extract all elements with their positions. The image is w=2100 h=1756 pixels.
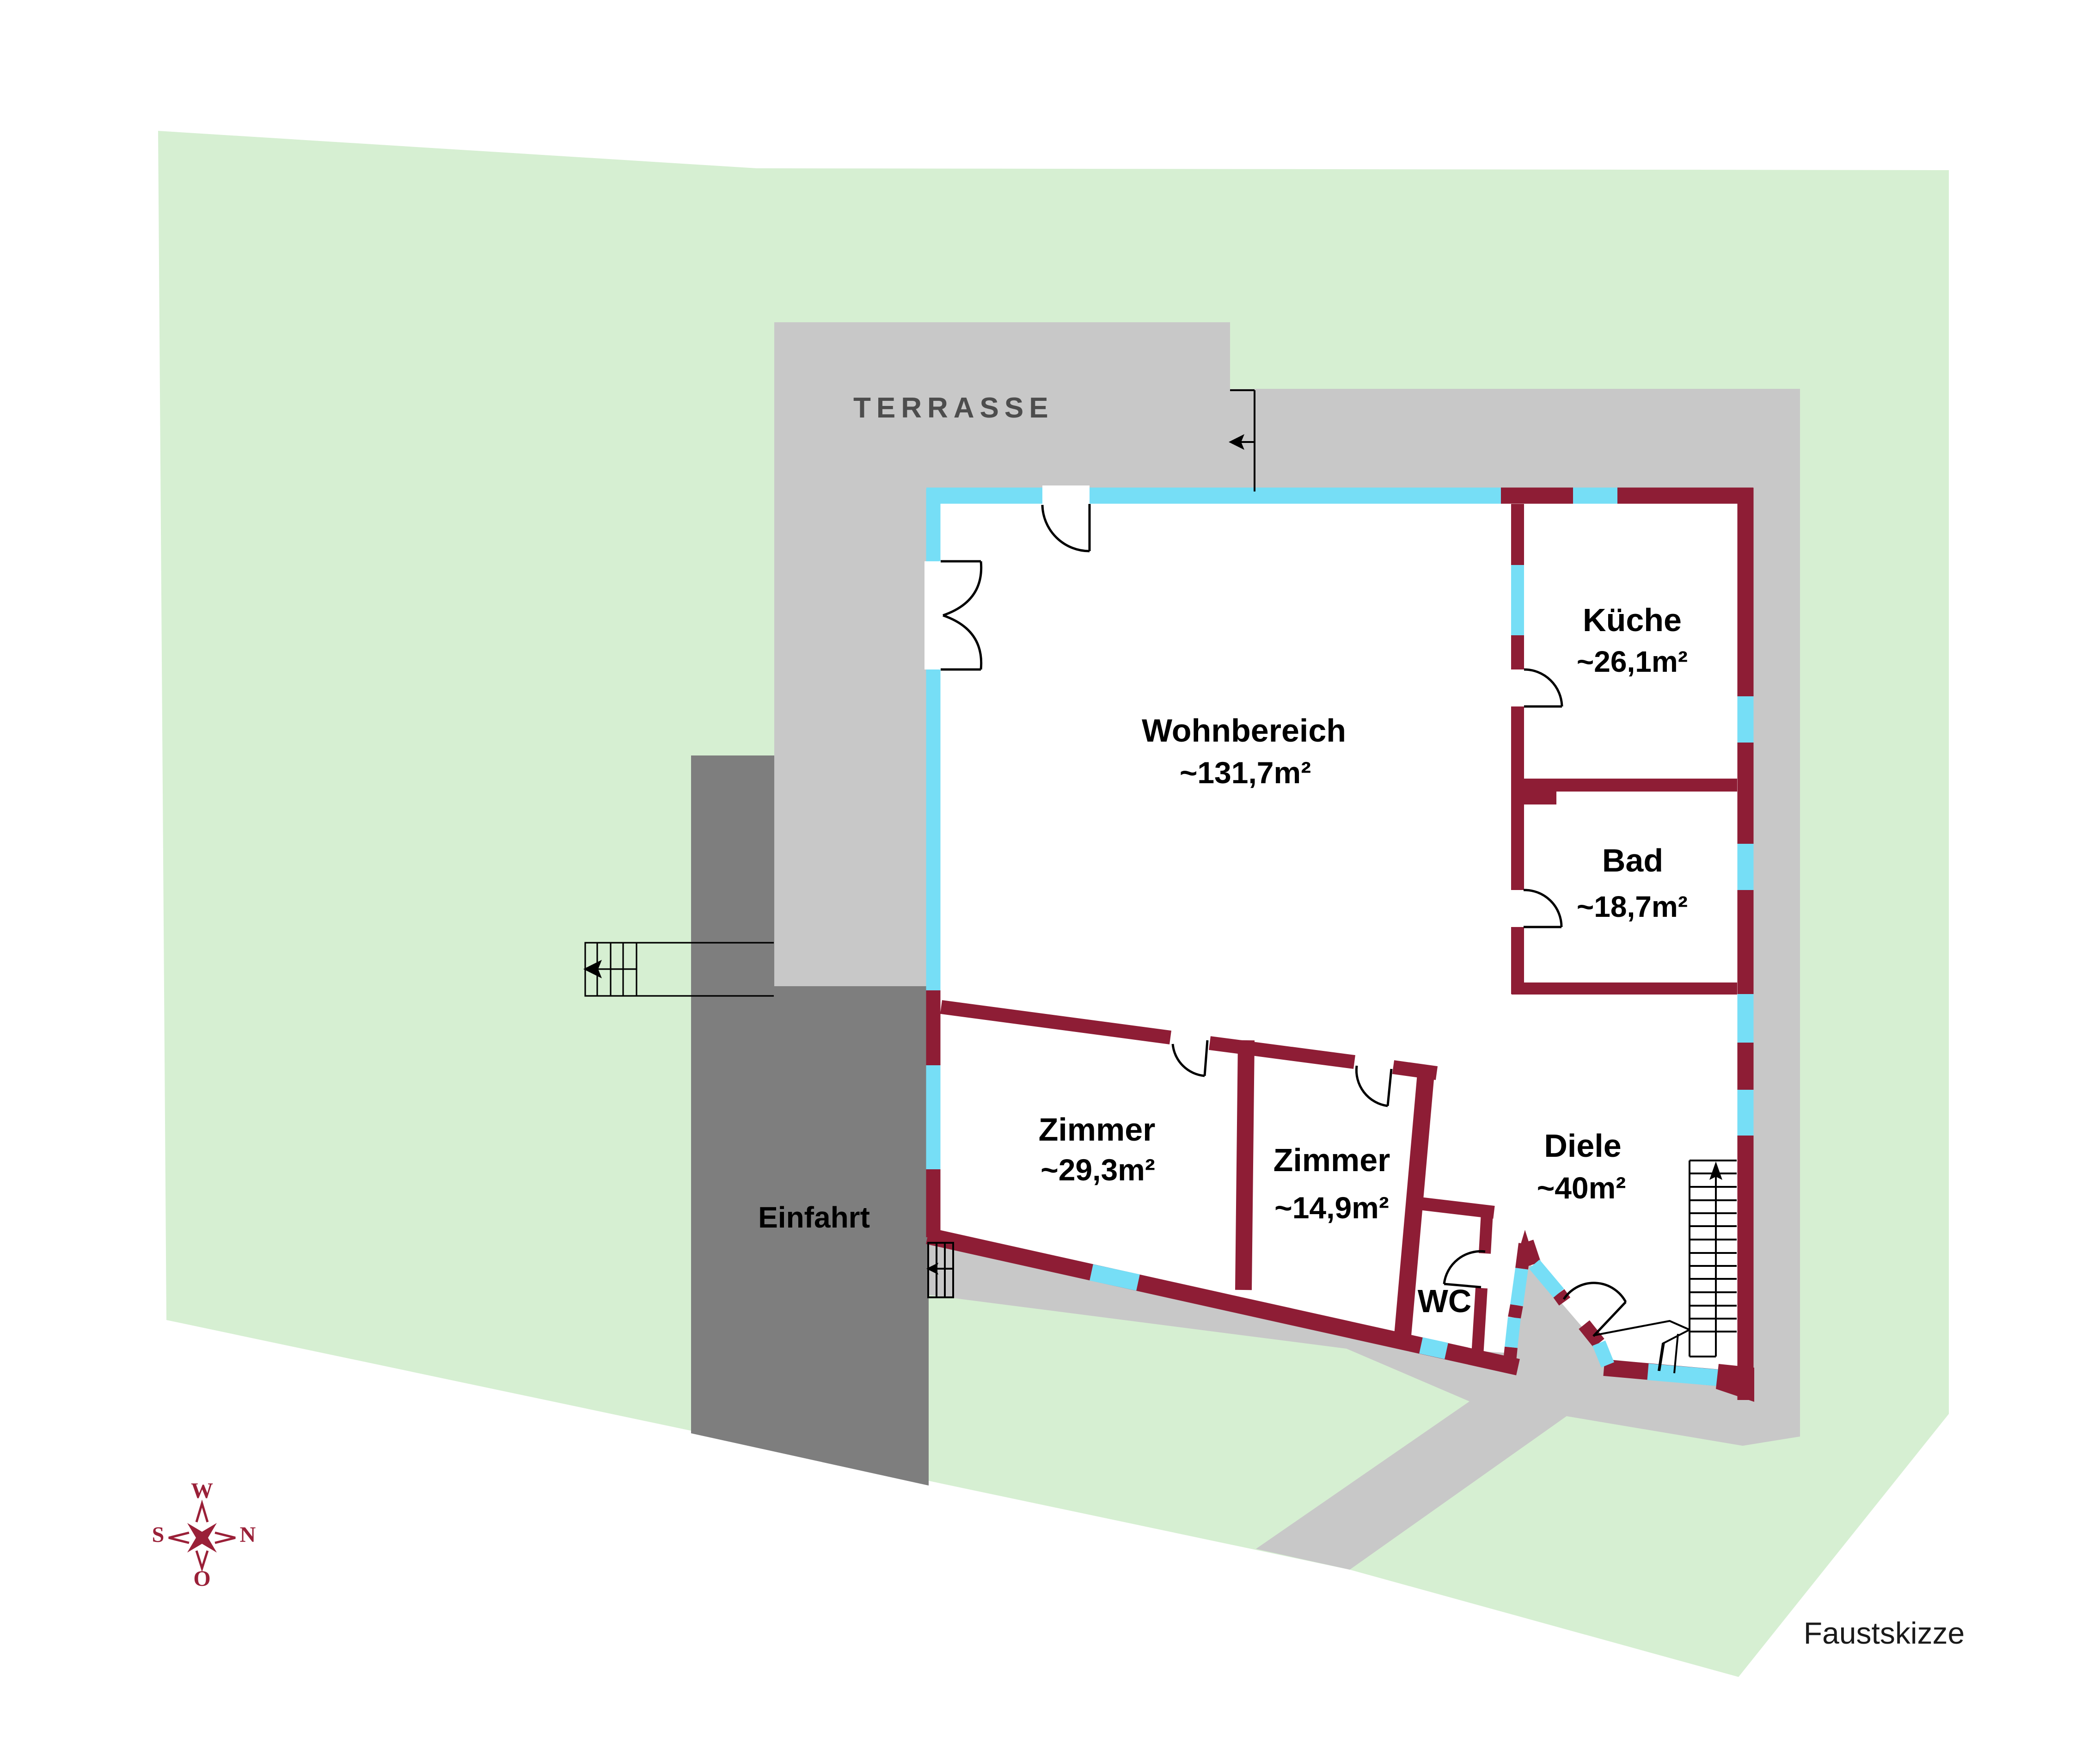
- svg-text:~26,1m²: ~26,1m²: [1577, 645, 1688, 678]
- svg-text:Diele: Diele: [1544, 1128, 1621, 1164]
- svg-text:Wohnbereich: Wohnbereich: [1142, 712, 1346, 749]
- svg-text:Zimmer: Zimmer: [1039, 1111, 1156, 1148]
- svg-text:O: O: [193, 1566, 210, 1591]
- svg-text:S: S: [152, 1523, 165, 1547]
- svg-text:~40m²: ~40m²: [1537, 1171, 1626, 1205]
- svg-text:~14,9m²: ~14,9m²: [1274, 1191, 1389, 1225]
- svg-text:Einfahrt: Einfahrt: [758, 1201, 870, 1234]
- svg-text:Küche: Küche: [1583, 602, 1682, 638]
- svg-text:Faustskizze: Faustskizze: [1804, 1616, 1965, 1650]
- svg-text:Bad: Bad: [1602, 842, 1663, 878]
- svg-text:~18,7m²: ~18,7m²: [1577, 890, 1688, 923]
- svg-text:WC: WC: [1418, 1283, 1472, 1319]
- svg-text:~131,7m²: ~131,7m²: [1180, 755, 1311, 790]
- svg-text:Zimmer: Zimmer: [1273, 1142, 1390, 1178]
- svg-text:N: N: [240, 1523, 256, 1547]
- svg-text:W: W: [191, 1479, 213, 1503]
- svg-text:TERRASSE: TERRASSE: [853, 392, 1054, 424]
- svg-text:~29,3m²: ~29,3m²: [1041, 1153, 1155, 1187]
